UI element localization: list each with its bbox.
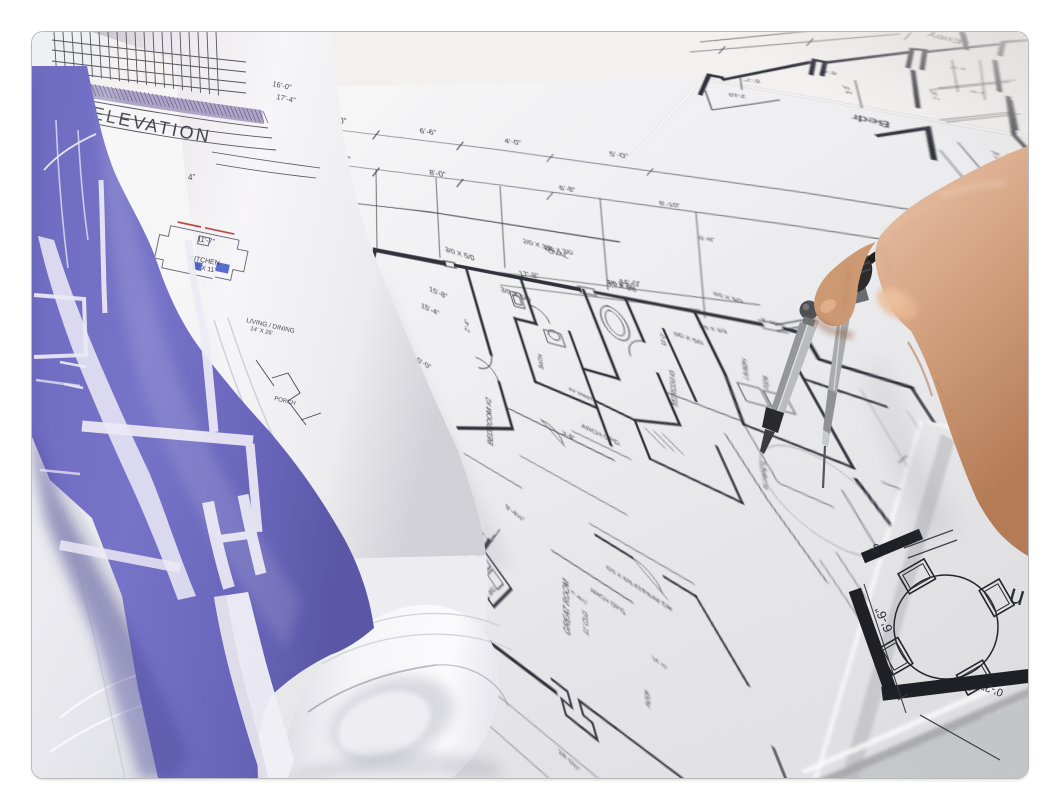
svg-text:4”: 4” [188, 173, 195, 182]
svg-text:n: n [1005, 582, 1028, 615]
